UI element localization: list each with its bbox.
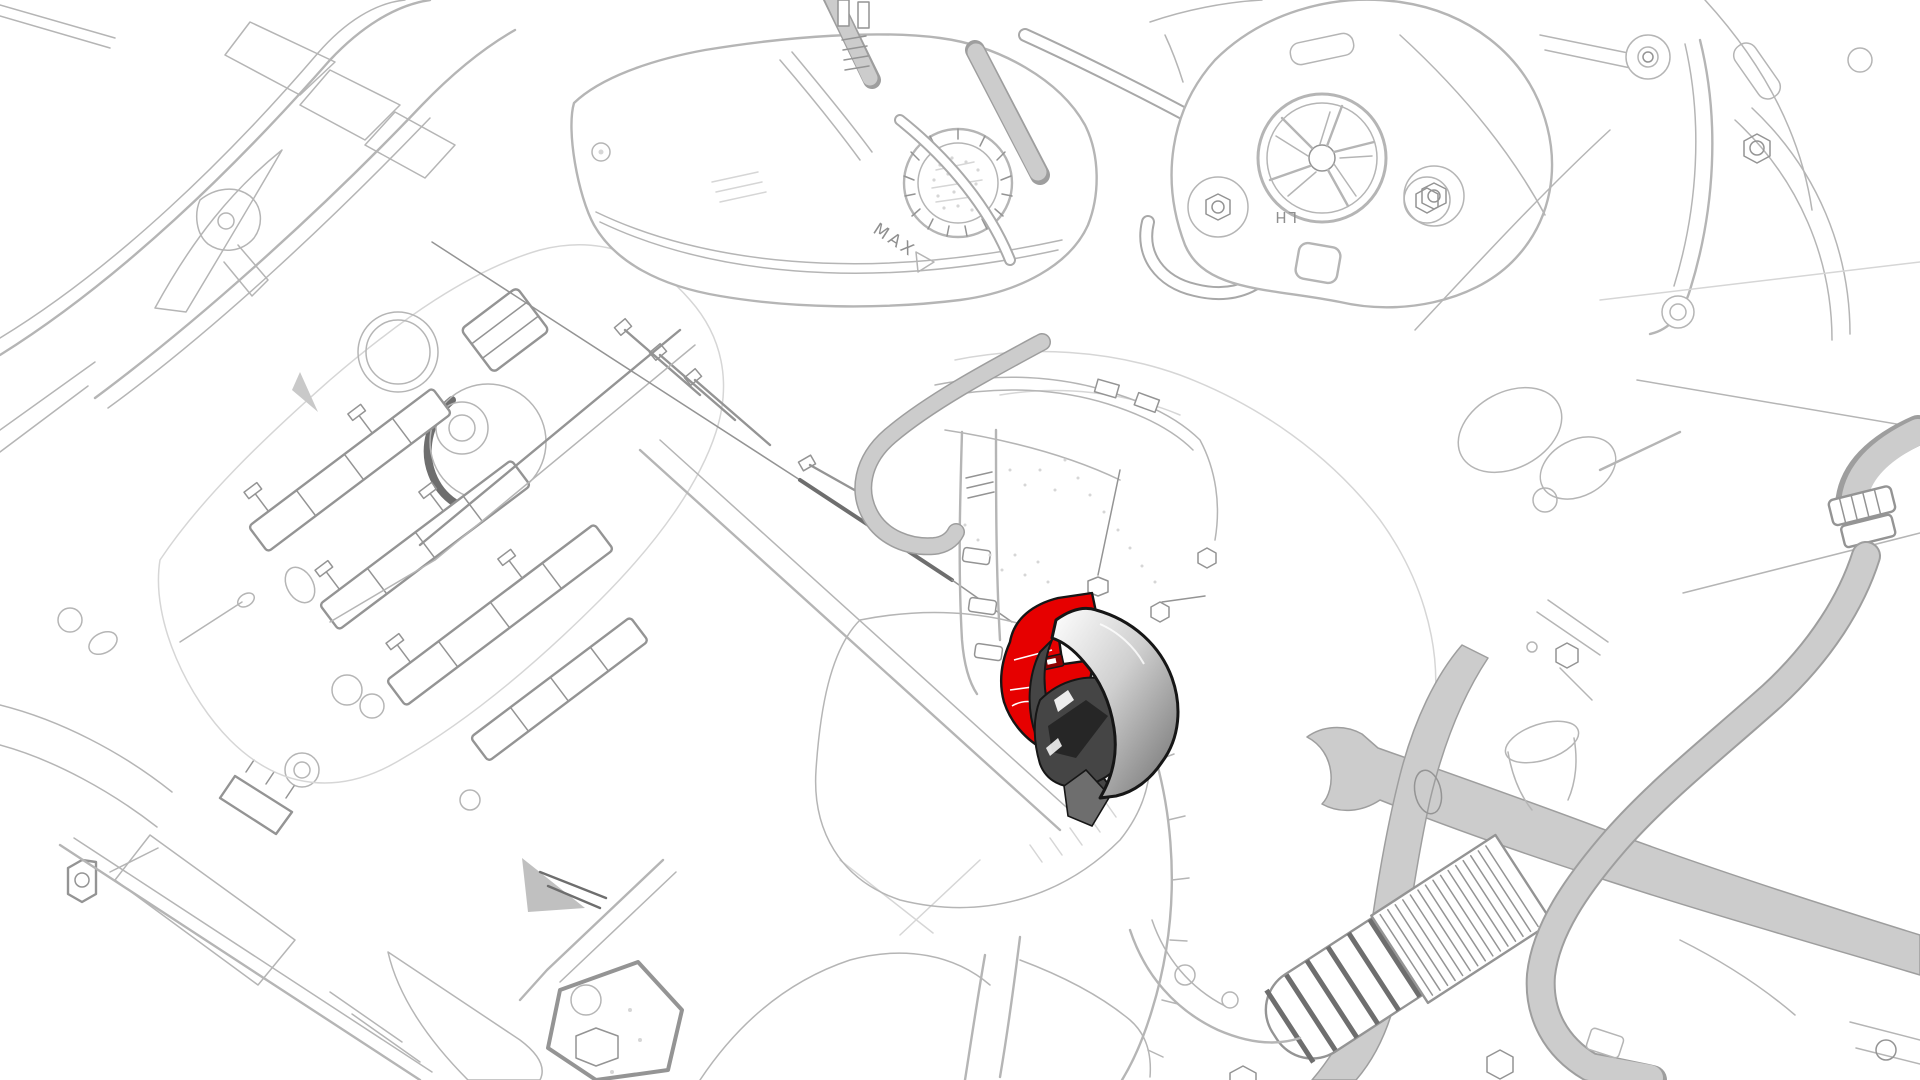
connector-strip — [230, 364, 451, 552]
engine-bay-illustration: MAX — [0, 0, 1920, 1080]
bottom-right-harness-lineart — [1130, 430, 1920, 1080]
booster-area-lineart — [1444, 371, 1680, 700]
speckle-texture — [964, 459, 1157, 584]
brake-fluid-reservoir: MAX — [571, 34, 1096, 306]
lineart-canvas: MAX — [0, 0, 1920, 1080]
power-module-lineart — [158, 245, 858, 783]
pump-bracket-lineart: LH — [1150, 0, 1872, 340]
connector-block — [461, 287, 549, 372]
mount-plate-hex — [548, 962, 682, 1080]
highlighted-component-assembly[interactable] — [863, 342, 1178, 826]
cowl-top-left-lineart — [0, 0, 515, 452]
lh-label: LH — [1273, 208, 1297, 226]
frame-rail-lineart — [330, 242, 1075, 935]
